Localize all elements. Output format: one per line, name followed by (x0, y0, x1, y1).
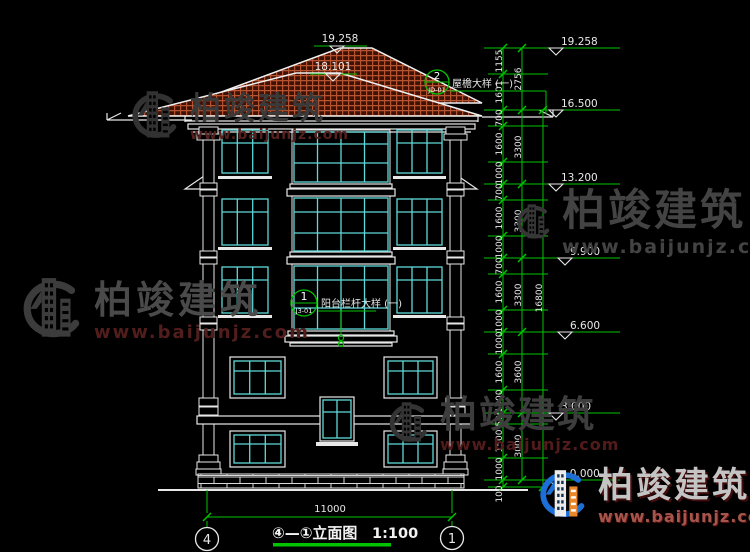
watermark-url: www.baijunjz.com (440, 435, 619, 454)
callout-label: 阳台栏杆大样 (一) (321, 297, 402, 310)
watermark-right: 柏竣建筑 www.baijunjz.com (514, 190, 750, 258)
brand-logo-icon (386, 394, 430, 456)
ridge-elevation-label: 19.258 (322, 33, 359, 45)
overall-width-label: 11000 (314, 504, 346, 515)
svg-text:1600: 1600 (495, 360, 505, 383)
watermark-brand: 柏竣建筑 (190, 94, 349, 125)
dim-label-overall-height: 16800 (535, 283, 545, 312)
svg-text:700: 700 (495, 257, 505, 274)
svg-text:1600: 1600 (495, 206, 505, 229)
svg-text:700: 700 (495, 183, 505, 200)
callout-number: 2 (434, 71, 440, 82)
watermark-brand: 柏竣建筑 (598, 469, 750, 504)
watermark-lower-right: 柏竣建筑 www.baijunjz.com (386, 394, 619, 456)
svg-text:3300: 3300 (514, 135, 524, 158)
watermark-brand: 柏竣建筑 (94, 281, 310, 319)
svg-text:1000: 1000 (495, 161, 505, 184)
elevation-label: 16.500 (561, 98, 598, 110)
svg-text:1600: 1600 (495, 280, 505, 303)
watermark-left: 柏竣建筑 www.baijunjz.com (18, 274, 310, 350)
watermark-url: www.baijunjz.com (94, 322, 310, 343)
svg-text:3600: 3600 (514, 360, 524, 383)
svg-text:2756: 2756 (514, 67, 524, 90)
title-text: ④—①立面图 (272, 524, 357, 542)
title-underline (273, 543, 391, 547)
watermark-top-left: 柏竣建筑 www.baijunjz.com (128, 88, 349, 148)
brand-logo-corner: 柏竣建筑 www.baijunjz.com (536, 464, 750, 530)
grid-bubble-1: 1 (448, 532, 456, 547)
watermark-url: www.baijunjz.com (598, 507, 750, 526)
cad-elevation-drawing: 1155 1601 700 1600 1000 700 1600 1000 70… (0, 0, 750, 552)
svg-text:3300: 3300 (514, 283, 524, 306)
watermark-brand: 柏竣建筑 (440, 396, 619, 433)
brand-logo-icon (18, 274, 84, 350)
elevation-label: 6.600 (570, 320, 600, 332)
callout-sheet-ref: JD-01 (427, 86, 446, 94)
svg-text:1000: 1000 (495, 457, 505, 480)
grid-bubble-4: 4 (203, 533, 211, 548)
plinth-brick-band (198, 474, 464, 488)
svg-text:1600: 1600 (495, 132, 505, 155)
brand-logo-icon (128, 88, 180, 148)
drawing-title: ④—①立面图 1:100 (272, 524, 418, 547)
watermark-url: www.baijunjz.com (190, 127, 349, 143)
svg-text:1000: 1000 (495, 235, 505, 258)
callout-label: 屋檐大样 (一) (452, 77, 513, 90)
front-ridge-elevation-label: 18.101 (315, 61, 352, 73)
svg-text:1000: 1000 (495, 331, 505, 354)
brand-logo-icon (536, 464, 588, 530)
watermark-brand: 柏竣建筑 (562, 190, 750, 233)
elevation-label: 13.200 (561, 172, 598, 184)
brand-logo-icon (514, 201, 552, 247)
elevation-label: 19.258 (561, 36, 598, 48)
svg-text:100: 100 (495, 485, 505, 502)
watermark-url: www.baijunjz.com (562, 236, 750, 258)
svg-text:1000: 1000 (495, 309, 505, 332)
svg-text:1155: 1155 (495, 50, 505, 73)
svg-text:700: 700 (495, 109, 505, 126)
title-scale: 1:100 (372, 526, 418, 542)
